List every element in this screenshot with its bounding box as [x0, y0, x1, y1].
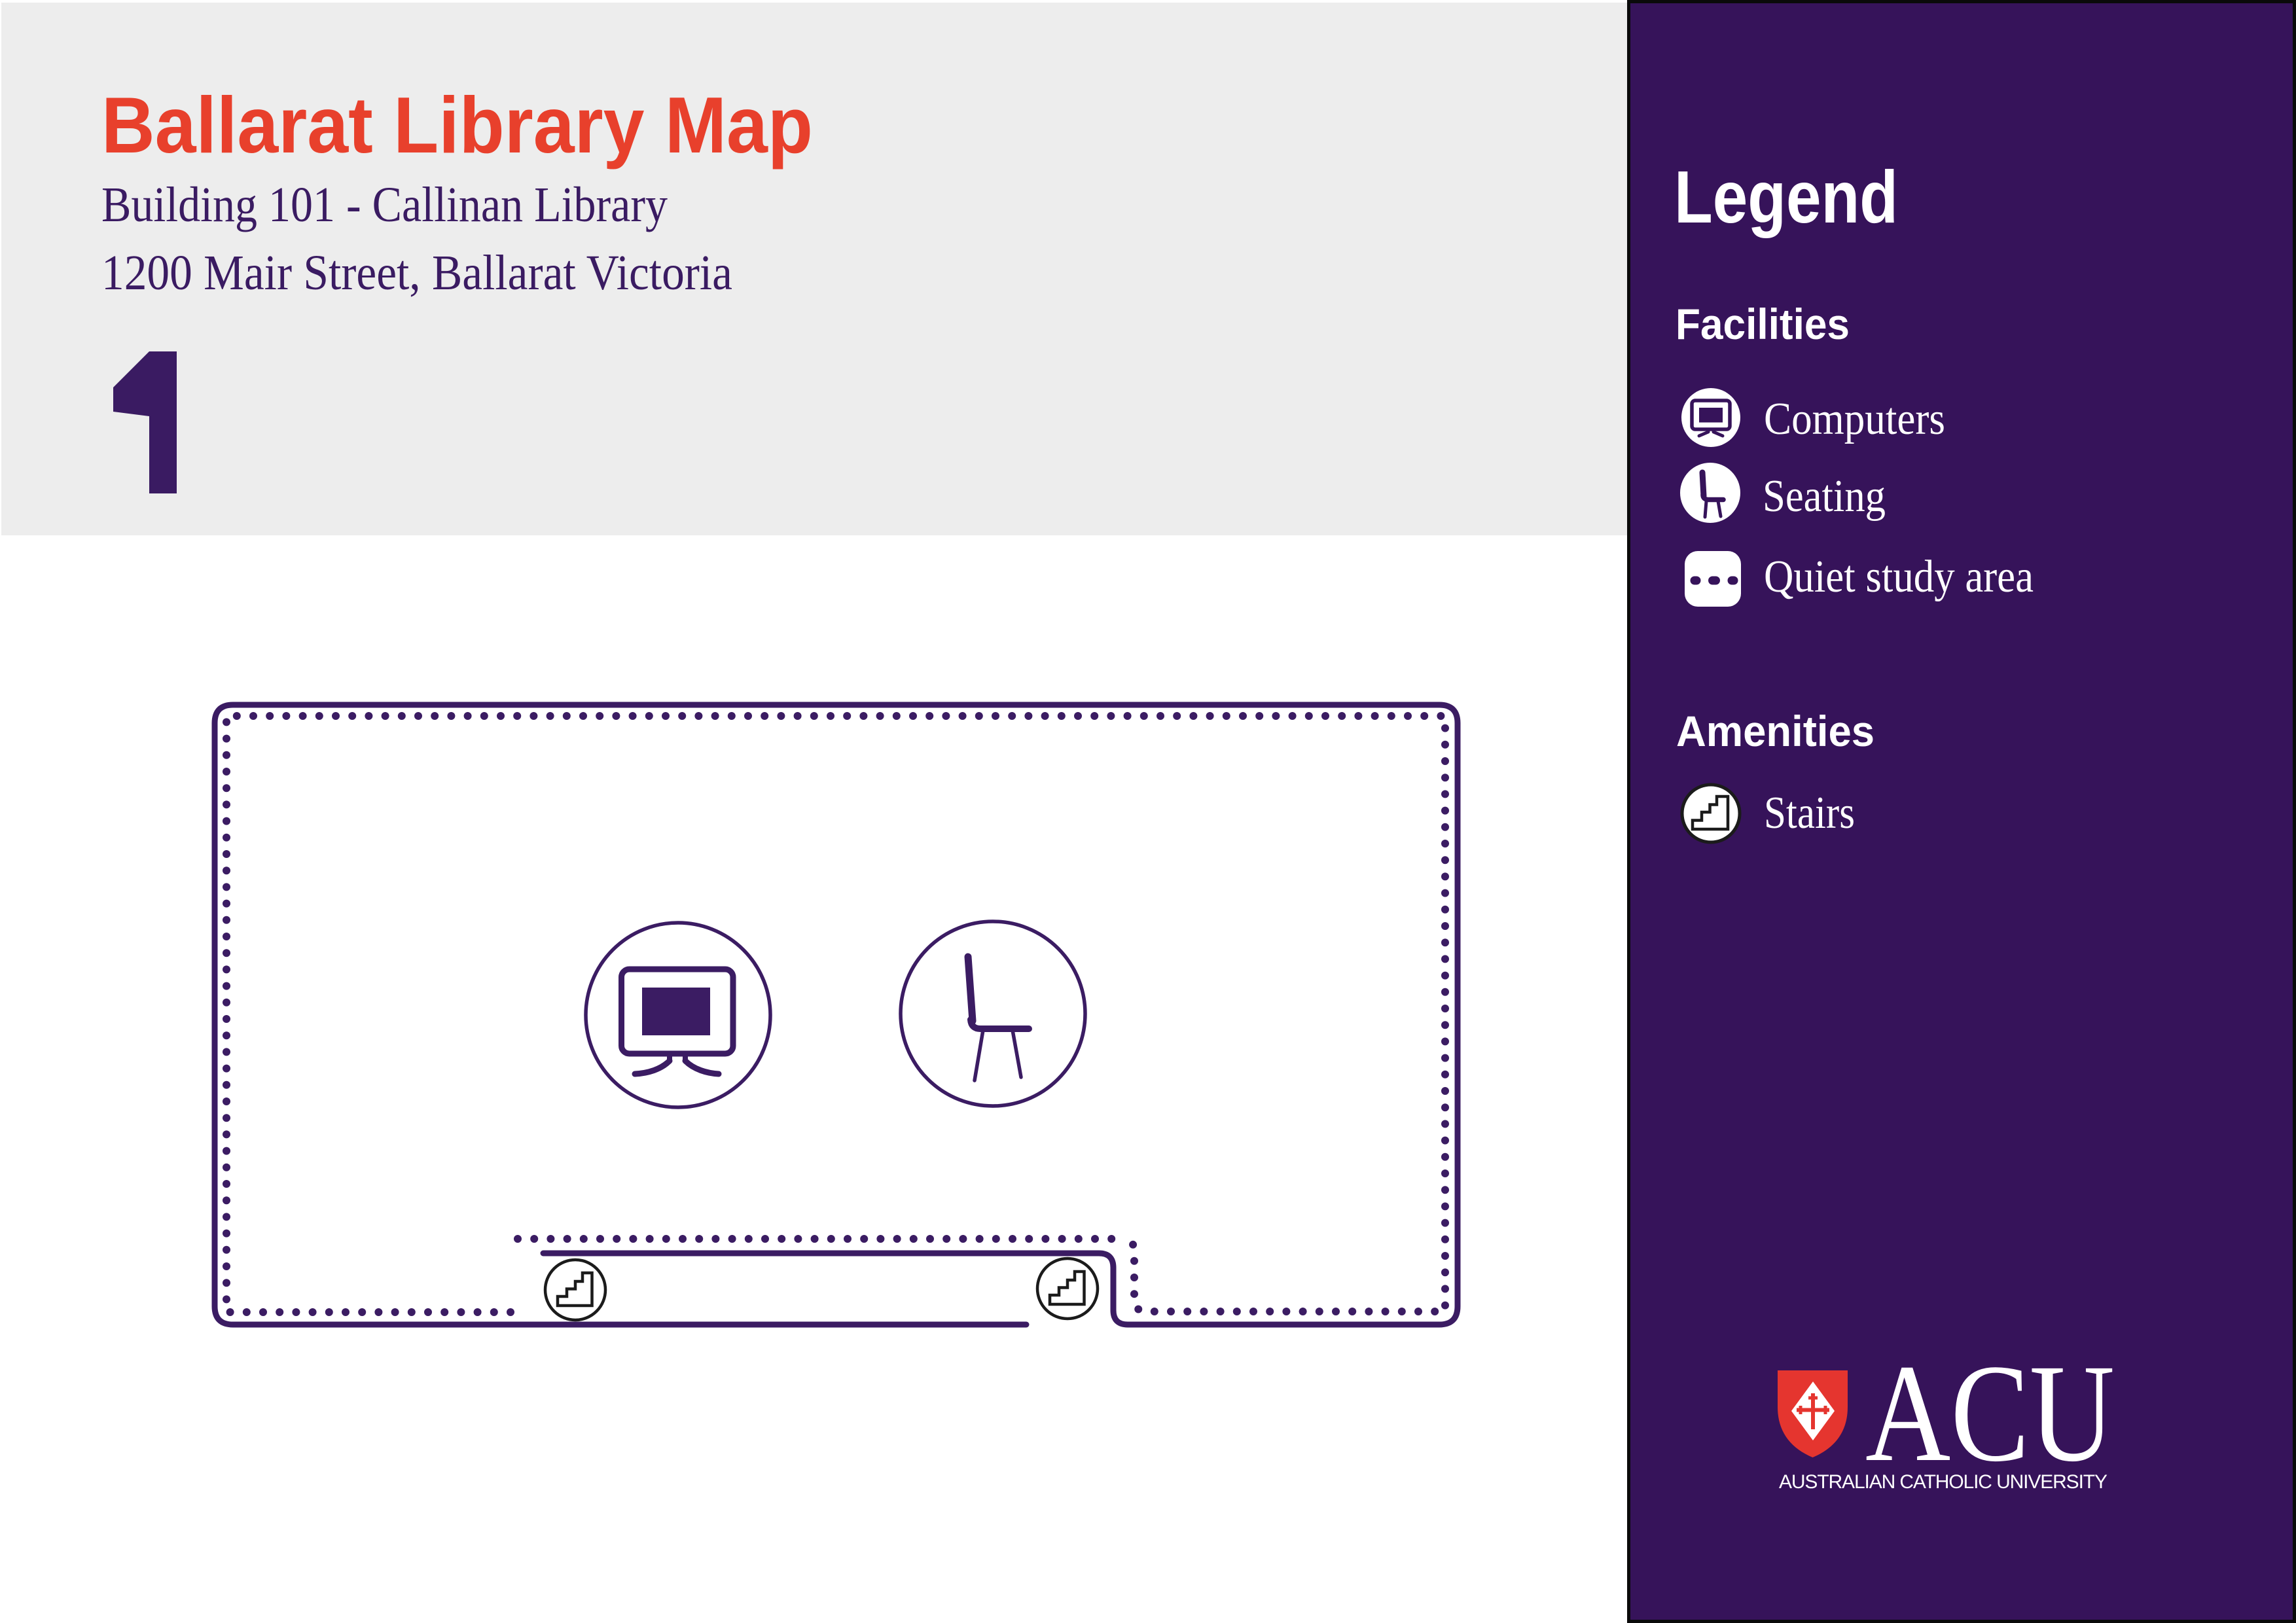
svg-text:ACU: ACU: [1865, 1336, 2115, 1491]
svg-text:Building 101 - Callinan Librar: Building 101 - Callinan Library: [101, 177, 668, 232]
svg-text:AUSTRALIAN CATHOLIC UNIVERSITY: AUSTRALIAN CATHOLIC UNIVERSITY: [1779, 1471, 2109, 1493]
svg-text:Stairs: Stairs: [1764, 788, 1855, 838]
svg-text:Ballarat Library Map: Ballarat Library Map: [101, 80, 813, 169]
svg-text:Amenities: Amenities: [1676, 707, 1874, 755]
svg-text:1200 Mair Street, Ballarat Vic: 1200 Mair Street, Ballarat Victoria: [101, 245, 732, 300]
svg-text:Seating: Seating: [1763, 471, 1886, 522]
svg-text:Quiet study area: Quiet study area: [1764, 552, 2034, 602]
svg-text:Facilities: Facilities: [1676, 300, 1850, 348]
svg-text:Legend: Legend: [1674, 156, 1898, 238]
svg-text:Computers: Computers: [1764, 394, 1945, 444]
